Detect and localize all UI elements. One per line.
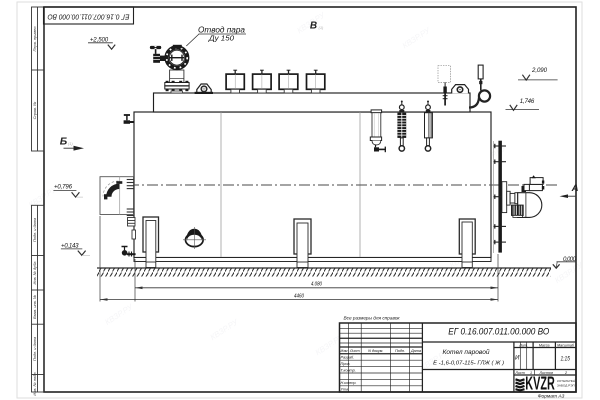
svg-text:В: В	[310, 20, 317, 31]
svg-text:Изм: Изм	[340, 349, 347, 353]
svg-text:Перв. примен.: Перв. примен.	[32, 26, 37, 52]
svg-text:Подп. и дата: Подп. и дата	[32, 336, 37, 361]
svg-text:(1): (1)	[319, 25, 325, 30]
svg-text:Н.контр.: Н.контр.	[341, 381, 357, 385]
svg-text:Лит.: Лит.	[518, 343, 527, 347]
svg-text:+0,796: +0,796	[54, 184, 73, 191]
svg-text:1:15: 1:15	[560, 356, 570, 362]
svg-text:Разраб.: Разраб.	[341, 356, 355, 360]
svg-text:Т.контр.: Т.контр.	[341, 368, 356, 372]
svg-text:Взам. инв. №: Взам. инв. №	[32, 294, 37, 319]
svg-text:Пров.: Пров.	[341, 362, 351, 366]
svg-text:Б: Б	[60, 136, 68, 148]
svg-text:Котел паровой: Котел паровой	[443, 348, 490, 356]
svg-text:Подп. и дата: Подп. и дата	[32, 217, 37, 242]
svg-text:1,746: 1,746	[520, 98, 535, 105]
svg-text:Подп.: Подп.	[395, 349, 405, 353]
svg-text:4460: 4460	[294, 294, 305, 300]
svg-text:Лист: Лист	[514, 371, 525, 375]
svg-text:Справ. №: Справ. №	[32, 101, 37, 119]
svg-text:Формат А3: Формат А3	[538, 393, 565, 399]
svg-text:KVZR: KVZR	[525, 374, 555, 394]
svg-text:+2,500: +2,500	[90, 36, 109, 43]
svg-text:Лист: Лист	[349, 349, 360, 353]
svg-text:Дата: Дата	[410, 349, 421, 353]
svg-text:Е -1,6-0,07-115- ГЛЖ ( Ж ): Е -1,6-0,07-115- ГЛЖ ( Ж )	[433, 360, 504, 366]
svg-text:ЕГ 0.16.007.011.00.000 ВО: ЕГ 0.16.007.011.00.000 ВО	[448, 327, 549, 337]
svg-text:Ду 150: Ду 150	[208, 34, 235, 43]
svg-text:Инв. № подл.: Инв. № подл.	[32, 371, 37, 395]
svg-text:А: А	[571, 183, 579, 194]
svg-text:ЕГ 0.16.007.011.00.000 ВО: ЕГ 0.16.007.011.00.000 ВО	[47, 12, 130, 19]
svg-text:Инв. № дубл.: Инв. № дубл.	[32, 261, 37, 285]
svg-text:Масштаб: Масштаб	[557, 343, 575, 347]
svg-text:4.080: 4.080	[311, 281, 323, 287]
svg-text:2: 2	[564, 371, 567, 375]
svg-text:+0,143: +0,143	[61, 243, 79, 250]
svg-text:КОТЕЛЬНЫЙ: КОТЕЛЬНЫЙ	[557, 379, 576, 383]
svg-text:N докум.: N докум.	[368, 349, 383, 353]
svg-text:(1): (1)	[68, 141, 74, 146]
svg-text:Утв.: Утв.	[341, 388, 350, 392]
svg-text:Масса: Масса	[539, 343, 550, 347]
svg-text:ЗАВОД РЭП: ЗАВОД РЭП	[557, 384, 575, 388]
svg-text:2,090: 2,090	[531, 67, 548, 74]
svg-text:И: И	[515, 355, 520, 362]
svg-text:0,000: 0,000	[563, 256, 577, 263]
svg-text:Все размеры для справок: Все размеры для справок	[344, 315, 401, 320]
